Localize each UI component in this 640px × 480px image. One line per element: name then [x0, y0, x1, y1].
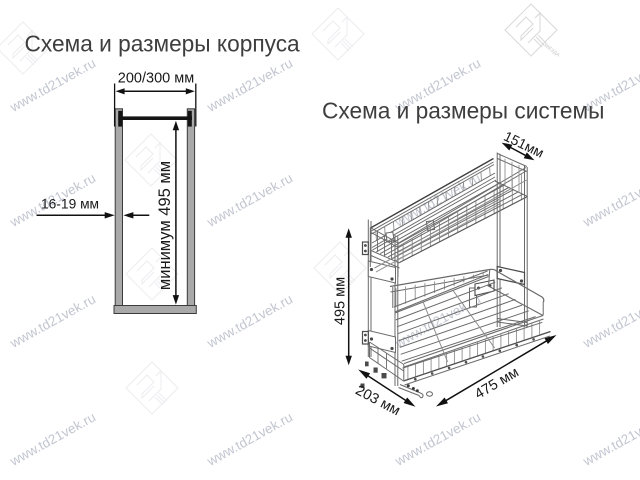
svg-text:495 мм: 495 мм	[333, 277, 349, 325]
svg-text:16-19 мм: 16-19 мм	[41, 197, 99, 212]
svg-text:Схема и размеры системы: Схема и размеры системы	[322, 97, 604, 123]
svg-text:минимум 495 мм: минимум 495 мм	[156, 161, 174, 290]
svg-text:Схема и размеры корпуса: Схема и размеры корпуса	[25, 30, 301, 56]
svg-text:200/300 мм: 200/300 мм	[118, 71, 194, 87]
